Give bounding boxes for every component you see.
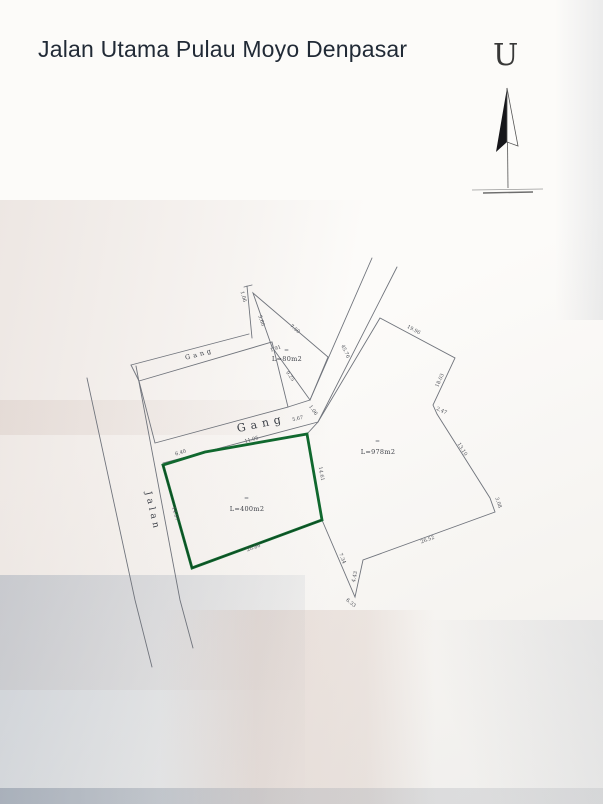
area-label-east: L=978m2 <box>361 448 396 456</box>
gang-top-road-label: Gang <box>184 346 214 361</box>
jalan-road-line-west <box>87 378 152 667</box>
dim-label: 19.96 <box>406 324 421 336</box>
dim-label: 14.61 <box>317 466 325 481</box>
map-drawing: Jalan Gang 1.06 L=80m2 5.60 7.50 1.91 9.… <box>0 0 603 804</box>
dim-label: 45.76 <box>339 344 350 360</box>
north-arrow-icon <box>472 88 543 193</box>
area-label-green: L=400m2 <box>230 505 265 513</box>
dim-label: 14.97 <box>170 506 180 521</box>
dim-label: 7.50 <box>288 323 300 335</box>
dim-label: 5.60 <box>256 314 265 326</box>
page-title: Jalan Utama Pulau Moyo Denpasar <box>38 36 407 63</box>
diagonal-road-line-west <box>310 258 372 400</box>
dim-label: 26.52 <box>420 535 436 546</box>
east-plot-outline <box>307 318 495 597</box>
dim-label: 6.33 <box>344 597 356 609</box>
corridor-tick <box>244 285 252 287</box>
jalan-road-label: Jalan <box>142 490 161 533</box>
dim-label: 9.25 <box>284 370 295 383</box>
gang-mid-road-label: Gang <box>236 412 287 435</box>
dim-label: 3.08 <box>493 496 502 508</box>
dim-label: 1.06 <box>239 291 248 303</box>
site-plan-photo: Jalan Utama Pulau Moyo Denpasar U Jalan … <box>0 0 603 804</box>
jalan-road-line-east <box>136 366 193 648</box>
dim-label: 1.06 <box>307 404 318 417</box>
dim-label: 5.67 <box>292 415 304 423</box>
gang-top-road-cap <box>131 365 139 381</box>
dim-label: 6.40 <box>175 449 187 458</box>
gang-mid-upper-line <box>288 400 310 407</box>
dim-label: 4.43 <box>351 571 359 583</box>
dim-label: 13.10 <box>456 442 469 457</box>
dim-label: 20.86 <box>246 543 262 554</box>
area-label-small: L=80m2 <box>272 355 302 363</box>
north-label: U <box>493 38 518 73</box>
corridor-line <box>247 286 252 338</box>
